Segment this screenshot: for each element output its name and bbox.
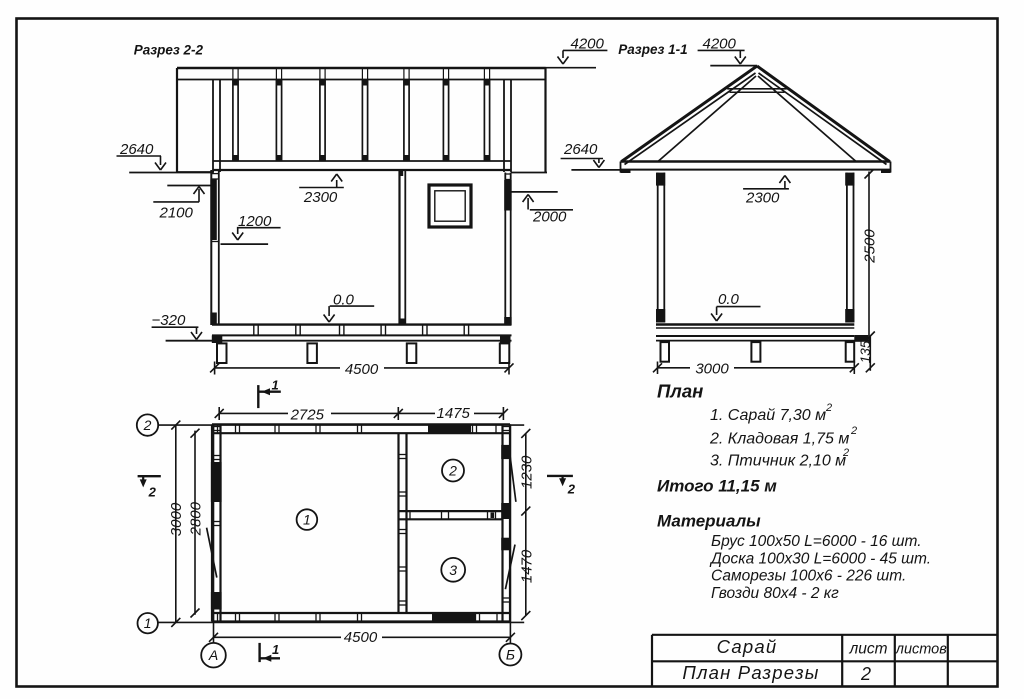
svg-text:План: План: [657, 381, 703, 402]
svg-text:2: 2: [448, 463, 457, 479]
svg-text:Сарай: Сарай: [717, 636, 778, 657]
svg-text:Гвозди 80х4 - 2 кг: Гвозди 80х4 - 2 кг: [711, 585, 839, 602]
svg-text:2300: 2300: [745, 189, 780, 206]
svg-text:4500: 4500: [344, 629, 378, 646]
svg-text:3000: 3000: [695, 360, 729, 377]
svg-text:1: 1: [303, 512, 311, 528]
svg-text:2: 2: [148, 485, 157, 500]
svg-text:2500: 2500: [862, 229, 879, 264]
svg-text:2300: 2300: [303, 189, 338, 206]
svg-text:Доска 100х30 L=6000 - 45 шт.: Доска 100х30 L=6000 - 45 шт.: [709, 550, 931, 567]
svg-text:2640: 2640: [563, 141, 598, 158]
svg-text:1: 1: [272, 642, 279, 657]
svg-text:1. Сарай 7,30 м: 1. Сарай 7,30 м: [710, 407, 826, 424]
svg-text:2: 2: [567, 482, 576, 497]
svg-text:листов: листов: [895, 642, 947, 658]
svg-text:1: 1: [144, 615, 152, 631]
svg-text:лист: лист: [848, 641, 887, 658]
svg-text:3: 3: [449, 562, 457, 578]
svg-text:3000: 3000: [168, 502, 185, 536]
svg-text:Разрез 1-1: Разрез 1-1: [618, 42, 687, 57]
svg-text:2800: 2800: [188, 501, 205, 536]
svg-text:Итого 11,15 м: Итого 11,15 м: [657, 477, 777, 496]
svg-text:Саморезы 100х6 - 226 шт.: Саморезы 100х6 - 226 шт.: [711, 568, 906, 585]
svg-text:1: 1: [272, 378, 279, 393]
svg-text:2: 2: [143, 417, 152, 433]
svg-text:3. Птичник 2,10 м: 3. Птичник 2,10 м: [710, 453, 846, 470]
svg-text:1475: 1475: [437, 405, 471, 422]
svg-text:2: 2: [850, 425, 857, 437]
svg-text:2100: 2100: [159, 205, 194, 222]
svg-text:Разрез 2-2: Разрез 2-2: [134, 43, 204, 58]
svg-text:2725: 2725: [290, 406, 325, 423]
svg-text:Материалы: Материалы: [657, 512, 761, 531]
svg-text:135: 135: [858, 340, 873, 363]
svg-text:План Разрезы: План Разрезы: [682, 662, 819, 683]
svg-text:Б: Б: [506, 647, 515, 663]
svg-text:2: 2: [825, 402, 832, 414]
svg-text:А: А: [208, 647, 218, 663]
svg-text:4500: 4500: [345, 361, 379, 378]
svg-text:0.0: 0.0: [718, 291, 740, 308]
svg-text:1230: 1230: [518, 455, 535, 489]
svg-text:2: 2: [842, 447, 849, 459]
svg-text:1470: 1470: [518, 549, 535, 583]
svg-text:Брус 100х50 L=6000 - 16 шт.: Брус 100х50 L=6000 - 16 шт.: [711, 533, 922, 550]
svg-text:2: 2: [860, 664, 871, 684]
svg-text:2. Кладовая 1,75 м: 2. Кладовая 1,75 м: [709, 431, 849, 448]
svg-text:2000: 2000: [532, 209, 567, 226]
